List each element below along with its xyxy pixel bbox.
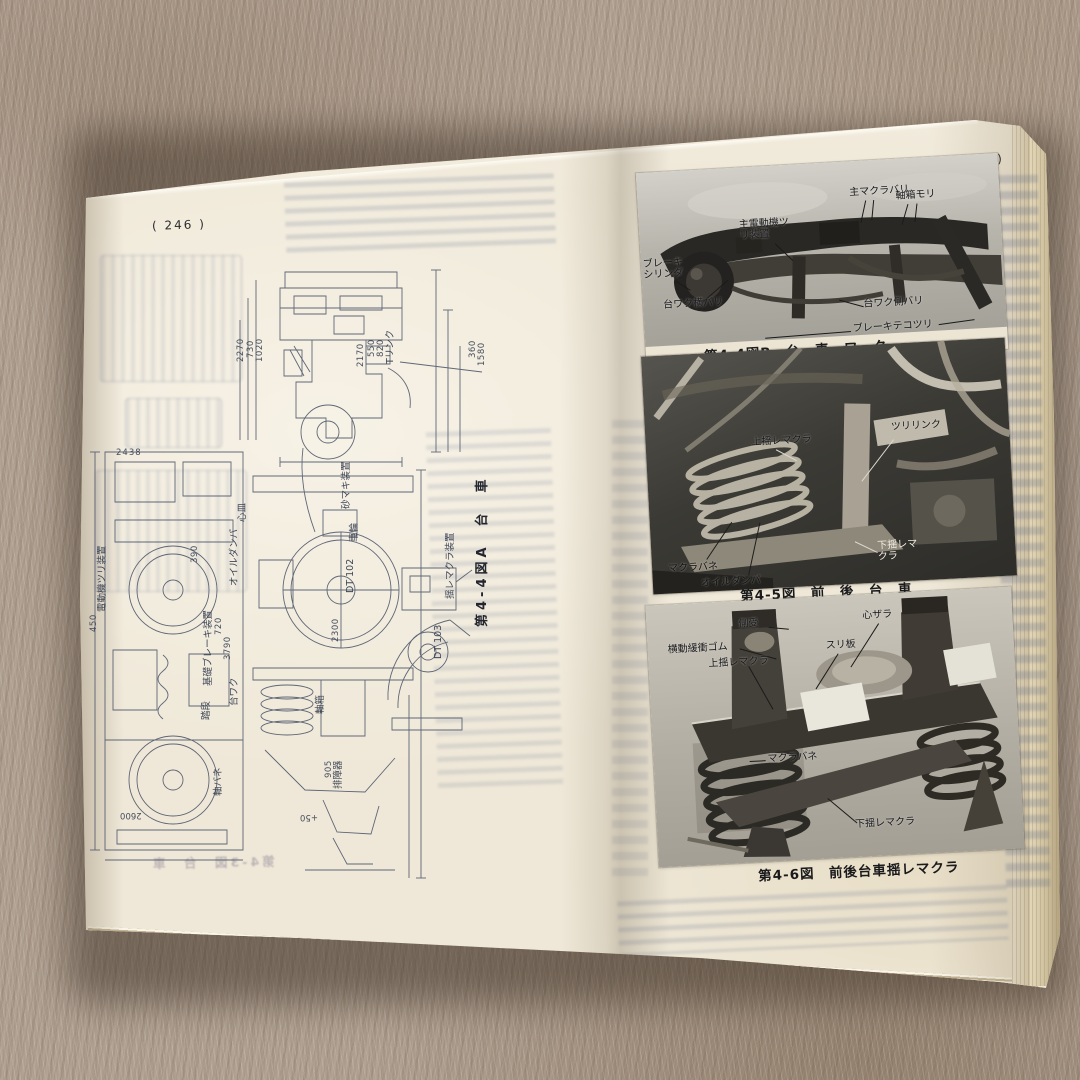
label-wear-plate: スリ板 [825,639,856,652]
label-axlebox-guide: 軸箱モリ [895,189,936,202]
figure-4-5-photo: 上揺レマクラ ツリリンク マクラバネ オイルダンパ 下揺レマクラ [641,338,1017,595]
label-shinzara: 心皿 [234,503,248,522]
label-fumidan: 踏段 [198,701,212,720]
bogie-frame-photo-art [636,153,1007,347]
left-page-number: ( 246 ) [152,217,206,233]
dim-450: 450 [89,614,99,632]
label-jikubane: 軸バネ [210,767,224,796]
label-sharin: 車輪 [346,523,360,542]
label-dt103: DT 103 [433,625,444,659]
dim-plus50: +50 [300,812,318,822]
dim-2438: 2438 [116,448,142,458]
dim-390: 390 [190,545,200,563]
dim-1020: 1020 [255,338,265,362]
label-yure-makura-souchi: 揺レマクラ装置 [442,532,456,599]
label-brake-cylinder: ブレーキシリンダ [643,256,690,281]
figure-4-6-photo: 側受 横動緩衝ゴム 上揺レマクラ 心ザラ スリ板 マクラバネ 下揺レマクラ [645,587,1024,868]
dim-2600: 2600 [120,810,142,820]
label-lower-swing-bolster: 下揺レマクラ [877,538,918,562]
label-oil-damper: オイルダンパ [226,529,240,586]
label-jikubako: 軸箱 [312,695,326,714]
bleed-through-text-column [612,420,648,880]
dim-1580: 1580 [477,342,487,366]
photo-of-open-book: 第4-3図 台 車 ( 246 ) [0,0,1080,1080]
swing-bolster-photo-art [645,587,1024,868]
label-dt102: DT 102 [345,559,356,593]
dim-2300: 2300 [331,618,341,642]
label-sunamaki: 砂マキ装置 [338,461,352,509]
label-kiso-brake: 基礎ブレーキ装置 [200,610,214,686]
label-center-plate: 心ザラ [862,609,893,622]
dim-3790: 3790 [223,636,233,660]
dim-720: 720 [214,617,224,635]
bogie-underframe-photo-art [641,338,1017,595]
label-dendouki-tsuri: 電動機ツリ装置 [94,545,108,612]
dim-2170: 2170 [356,343,366,367]
label-side-bearing: 側受 [738,618,759,630]
bogie-line-drawings [85,240,485,890]
dim-2270: 2270 [236,338,246,362]
dim-820: 820 [376,339,386,357]
figure-4-4b-photo: 主電動機ツリ装置 主マクラバリ 軸箱モリ ブレーキシリンダ 台ワク横バリ 台ワク… [636,153,1008,369]
label-daiwaku: 台ワク [226,677,240,706]
left-figure-caption: 第4-4図A 台 車 [471,475,490,627]
dim-905: 905 [324,760,334,778]
label-main-motor-suspension: 主電動機ツリ装置 [739,217,794,242]
